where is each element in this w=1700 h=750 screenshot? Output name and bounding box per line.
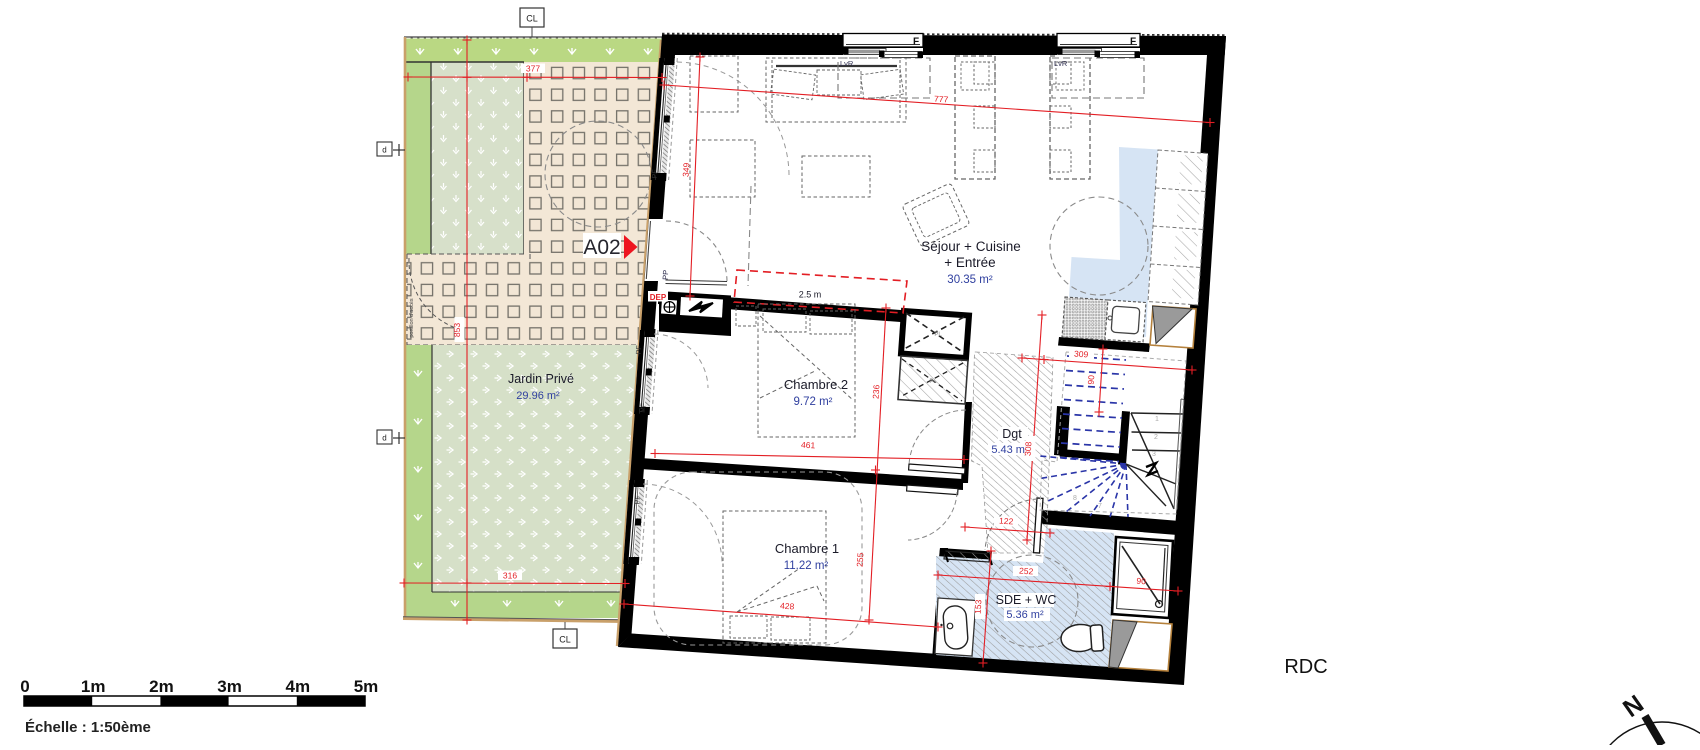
svg-text:1: 1 [1155, 416, 1159, 423]
svg-text:90: 90 [1086, 374, 1097, 384]
svg-text:LvR: LvR [1054, 59, 1068, 68]
svg-text:2: 2 [1154, 434, 1158, 441]
svg-text:252: 252 [1019, 566, 1034, 577]
svg-text:853: 853 [452, 323, 462, 337]
svg-text:5m: 5m [354, 677, 379, 696]
svg-text:DEP: DEP [650, 293, 667, 302]
svg-text:F: F [1130, 37, 1136, 48]
svg-text:308: 308 [1023, 441, 1034, 456]
svg-text:Chambre 2: Chambre 2 [784, 377, 848, 392]
svg-text:CL: CL [559, 635, 571, 645]
svg-text:30.35 m²: 30.35 m² [947, 274, 993, 286]
svg-text:428: 428 [780, 601, 795, 612]
svg-text:2m: 2m [149, 677, 174, 696]
svg-text:5.36 m²: 5.36 m² [1006, 609, 1044, 621]
svg-text:Chambre 1: Chambre 1 [775, 541, 839, 556]
svg-text:29.96 m²: 29.96 m² [516, 390, 560, 402]
svg-text:Séjour + Cuisine: Séjour + Cuisine [921, 239, 1020, 254]
svg-text:Dgt: Dgt [1002, 427, 1022, 441]
svg-text:PF: PF [635, 495, 643, 504]
svg-text:PL: PL [929, 379, 937, 385]
svg-text:LvR: LvR [840, 59, 854, 68]
svg-text:777: 777 [934, 94, 949, 105]
svg-text:8: 8 [1073, 495, 1077, 502]
svg-text:0: 0 [20, 677, 29, 696]
svg-text:90: 90 [1136, 576, 1146, 587]
svg-text:122: 122 [999, 516, 1014, 527]
svg-text:236: 236 [871, 384, 882, 399]
svg-text:portillon d'accès: portillon d'accès [409, 298, 415, 338]
svg-text:+ Entrée: + Entrée [944, 255, 995, 270]
svg-text:CL: CL [526, 14, 538, 24]
svg-text:7: 7 [1098, 503, 1102, 510]
svg-text:PP: PP [661, 270, 671, 280]
svg-text:1m: 1m [81, 677, 106, 696]
svg-text:A02: A02 [583, 236, 620, 259]
svg-text:153: 153 [973, 599, 984, 614]
svg-text:PF: PF [636, 345, 644, 354]
svg-text:4m: 4m [286, 677, 311, 696]
svg-text:F: F [913, 37, 919, 48]
svg-text:RDC: RDC [1284, 656, 1327, 678]
svg-text:PF: PF [652, 169, 660, 178]
svg-text:309: 309 [1074, 349, 1089, 360]
svg-text:349: 349 [681, 162, 692, 177]
svg-text:3m: 3m [217, 677, 242, 696]
svg-text:11.22 m²: 11.22 m² [784, 560, 829, 572]
svg-text:d: d [382, 146, 386, 155]
svg-text:9.72 m²: 9.72 m² [794, 396, 833, 408]
svg-text:Jardin Privé: Jardin Privé [508, 372, 574, 386]
svg-text:d: d [382, 434, 386, 443]
svg-text:377: 377 [526, 64, 540, 74]
svg-text:PL: PL [934, 332, 942, 338]
svg-text:SDE + WC: SDE + WC [996, 593, 1057, 607]
svg-text:3: 3 [1152, 451, 1156, 458]
svg-text:2.5 m: 2.5 m [799, 290, 822, 300]
svg-text:255: 255 [855, 552, 866, 567]
svg-text:461: 461 [801, 440, 816, 451]
svg-text:316: 316 [503, 571, 517, 581]
svg-text:MF: MF [640, 403, 648, 413]
svg-text:Échelle : 1:50ème: Échelle : 1:50ème [25, 719, 151, 736]
